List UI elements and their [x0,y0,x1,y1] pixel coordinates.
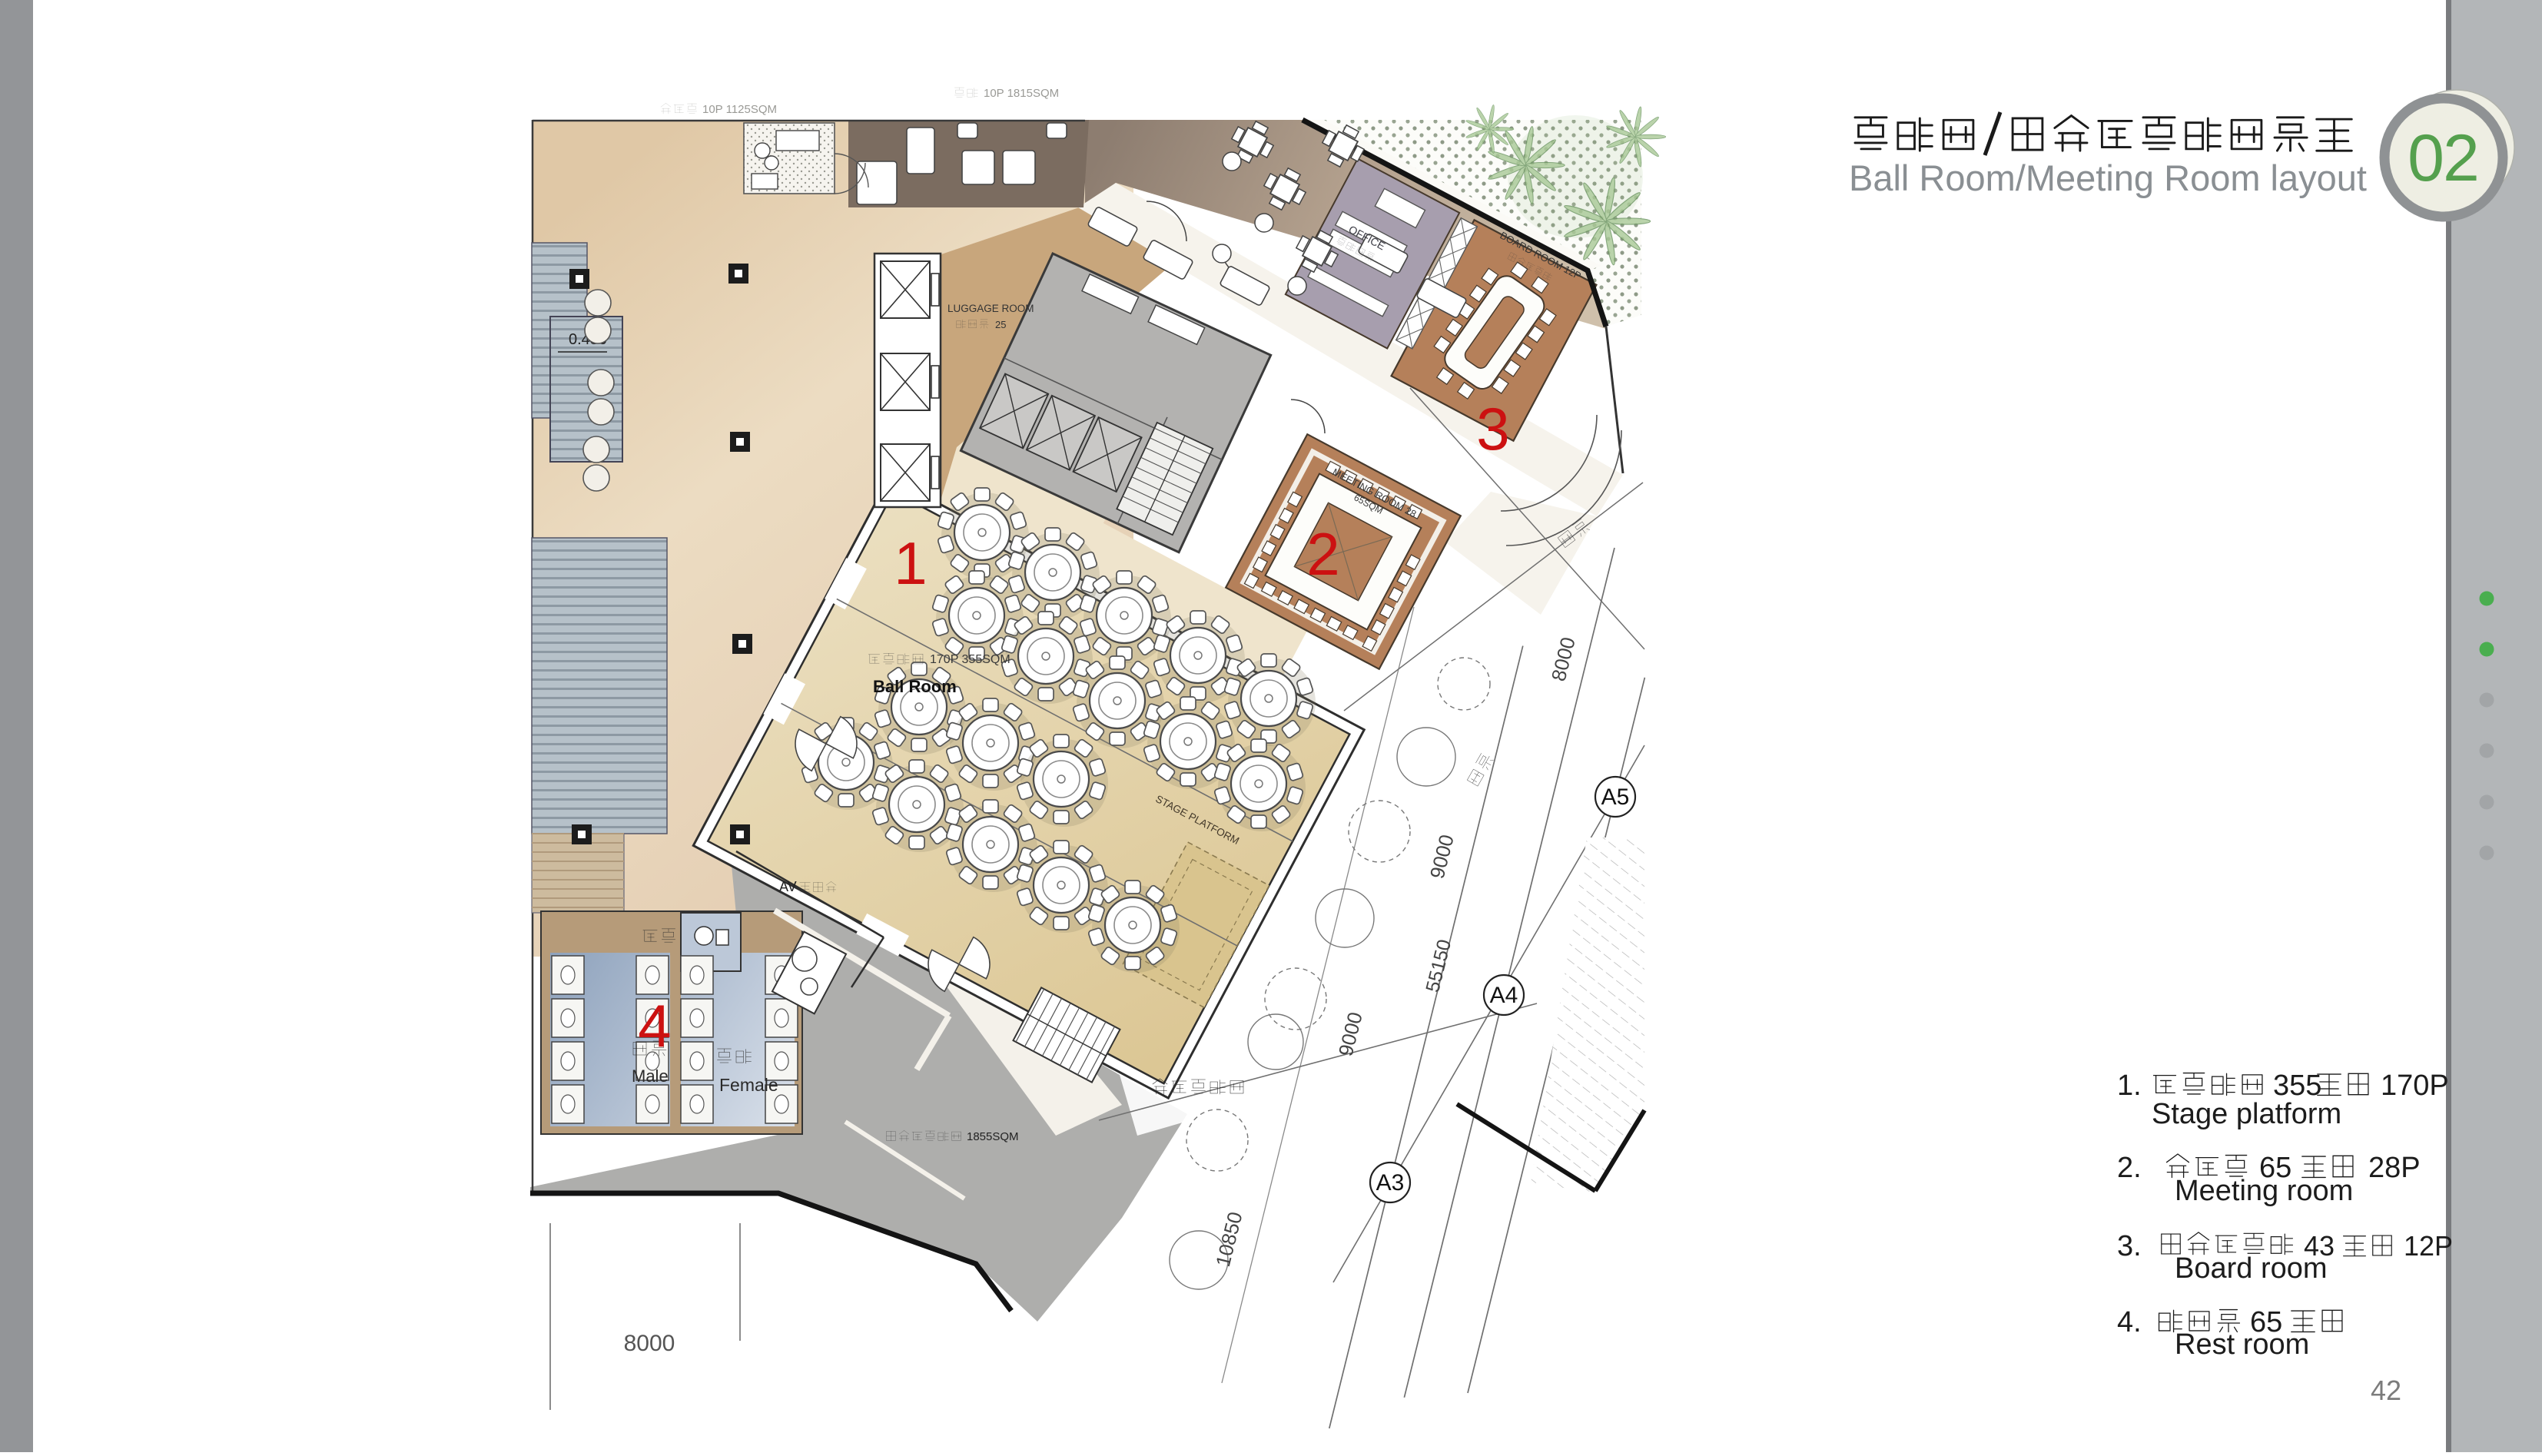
svg-text:02: 02 [2408,121,2478,195]
svg-text:2: 2 [1306,520,1339,588]
svg-text:170P 355SQM: 170P 355SQM [930,653,1010,666]
svg-text:25: 25 [995,319,1006,330]
svg-text:Stage platform: Stage platform [2152,1098,2341,1130]
svg-text:Board room: Board room [2175,1252,2328,1285]
svg-text:42: 42 [2371,1375,2401,1406]
svg-text:Ball Room/Meeting Room layout: Ball Room/Meeting Room layout [1849,158,2367,198]
svg-text:355: 355 [2273,1070,2321,1102]
svg-text:Meeting room: Meeting room [2175,1175,2353,1207]
svg-text:3: 3 [1476,395,1509,463]
svg-text:2.: 2. [2117,1152,2142,1184]
svg-text:4.: 4. [2117,1306,2142,1338]
svg-text:Male: Male [632,1066,669,1086]
svg-text:1: 1 [894,529,927,597]
svg-text:A5: A5 [1601,784,1630,810]
svg-text:Rest room: Rest room [2175,1328,2309,1361]
svg-text:10P 1125SQM: 10P 1125SQM [702,103,777,116]
svg-text:A4: A4 [1490,983,1518,1008]
svg-text:10P 1815SQM: 10P 1815SQM [984,87,1059,100]
svg-text:12P: 12P [2404,1230,2453,1262]
svg-text:1.: 1. [2117,1070,2142,1102]
svg-text:Female: Female [719,1075,778,1095]
svg-text:Ball Room: Ball Room [873,677,957,696]
svg-text:AV: AV [779,879,797,894]
svg-text:170P: 170P [2381,1070,2449,1102]
svg-text:3.: 3. [2117,1230,2142,1262]
svg-text:8000: 8000 [624,1331,675,1356]
svg-text:A3: A3 [1376,1170,1405,1196]
svg-text:28P: 28P [2368,1152,2421,1184]
svg-text:LUGGAGE ROOM: LUGGAGE ROOM [947,303,1034,314]
svg-text:1855SQM: 1855SQM [967,1130,1019,1143]
svg-text:4: 4 [638,992,671,1060]
